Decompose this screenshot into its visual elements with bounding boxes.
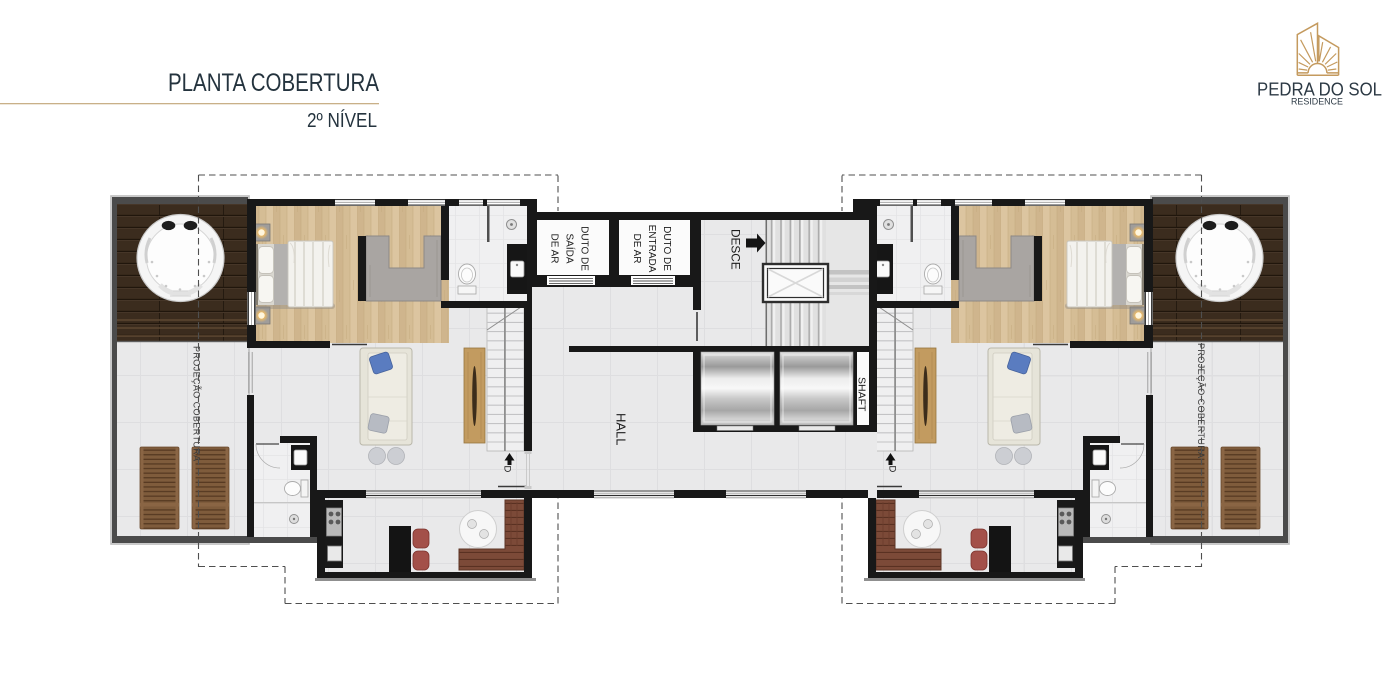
svg-text:DE AR: DE AR — [631, 233, 642, 263]
svg-text:SHAFT: SHAFT — [856, 377, 868, 412]
svg-text:HALL: HALL — [614, 413, 629, 446]
svg-text:PLANTA COBERTURA: PLANTA COBERTURA — [168, 69, 379, 97]
svg-text:ENTRADA: ENTRADA — [646, 225, 657, 273]
svg-text:DE AR: DE AR — [549, 233, 560, 263]
svg-text:2º NÍVEL: 2º NÍVEL — [307, 109, 377, 132]
svg-text:DESCE: DESCE — [729, 229, 743, 270]
svg-text:DUTO DE: DUTO DE — [661, 226, 672, 271]
svg-text:D: D — [887, 466, 898, 473]
svg-text:DUTO DE: DUTO DE — [579, 226, 590, 271]
svg-text:PROJEÇÃO COBERTURA: PROJEÇÃO COBERTURA — [192, 346, 202, 462]
svg-text:SAÍDA: SAÍDA — [564, 233, 577, 263]
svg-text:RESIDENCE: RESIDENCE — [1291, 97, 1343, 108]
svg-text:D: D — [502, 466, 513, 473]
